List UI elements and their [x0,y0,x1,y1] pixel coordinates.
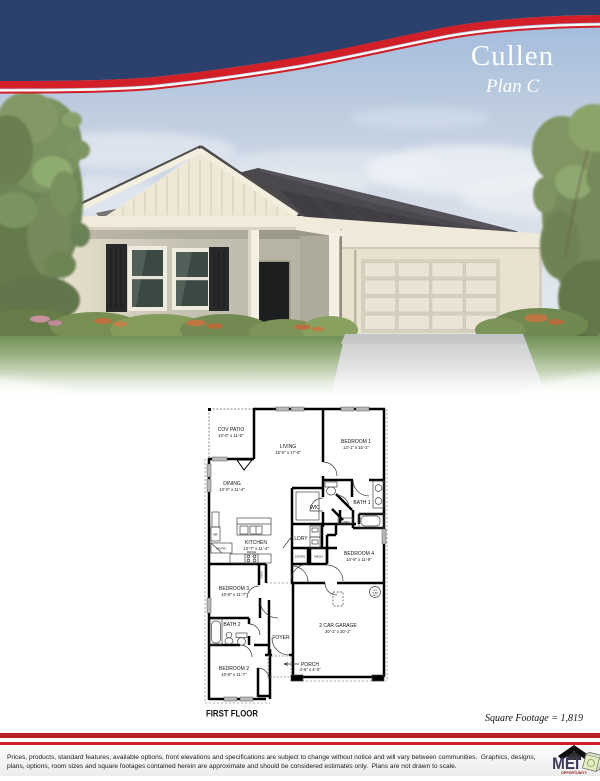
svg-text:DOORS: DOORS [295,555,305,559]
svg-text:WIC: WIC [310,505,320,511]
svg-text:RANGE: RANGE [247,550,256,554]
svg-text:10'-8" x 11'-7": 10'-8" x 11'-7" [221,592,247,597]
svg-text:LINEN: LINEN [260,571,264,579]
svg-text:10'-0" x 11'-4": 10'-0" x 11'-4" [219,487,245,492]
svg-text:LINEN: LINEN [342,520,350,524]
svg-text:10'-9" x 11'-9": 10'-9" x 11'-9" [346,557,372,562]
svg-text:REF: REF [213,534,218,537]
svg-text:10'-0" x 11'-0": 10'-0" x 11'-0" [218,433,244,438]
svg-text:OPPORTUNITY: OPPORTUNITY [561,771,588,775]
svg-text:4'-6" x 4'-0": 4'-6" x 4'-0" [299,667,321,672]
svg-text:20'-1" x 20'-1": 20'-1" x 20'-1" [325,629,351,634]
svg-text:FOYER: FOYER [272,635,290,641]
svg-text:13'-1" x 15'-1": 13'-1" x 15'-1" [343,445,369,450]
svg-text:BATH 1: BATH 1 [353,500,370,506]
svg-text:10'-8" x 11'-7": 10'-8" x 11'-7" [221,672,247,677]
svg-text:15'-0" x 17'-0": 15'-0" x 17'-0" [275,450,301,455]
svg-text:LDRY: LDRY [294,536,308,542]
svg-text:BATH 2: BATH 2 [223,622,240,628]
svg-text:PANTRY: PANTRY [216,547,227,551]
svg-text:REC: REC [373,595,378,597]
svg-text:MECH: MECH [314,555,322,559]
